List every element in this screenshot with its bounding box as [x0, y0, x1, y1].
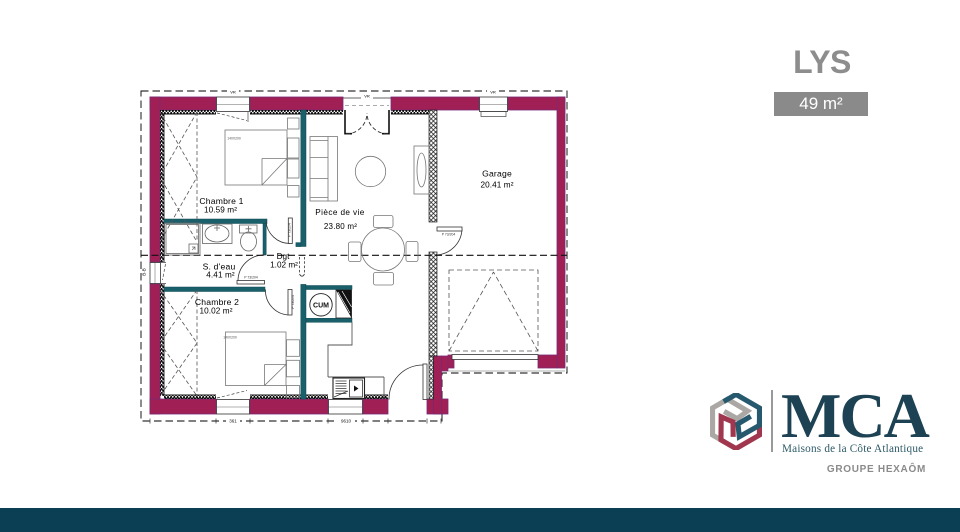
svg-text:Chambre 2: Chambre 2 — [195, 297, 239, 307]
svg-text:9610: 9610 — [341, 419, 352, 424]
svg-text:VR: VR — [230, 90, 236, 95]
svg-text:P 73/204: P 73/204 — [244, 276, 258, 280]
svg-text:140X200: 140X200 — [223, 336, 237, 340]
svg-text:20.41 m²: 20.41 m² — [480, 181, 513, 190]
svg-text:Pièce de vie: Pièce de vie — [315, 208, 364, 217]
svg-text:P 73/204: P 73/204 — [287, 223, 291, 237]
svg-text:CUM: CUM — [313, 303, 329, 310]
svg-text:VR: VR — [490, 90, 496, 95]
svg-text:10.02 m²: 10.02 m² — [199, 307, 232, 316]
svg-text:Garage: Garage — [482, 169, 512, 179]
svg-text:VR: VR — [364, 94, 370, 99]
svg-text:B-B: B-B — [142, 268, 147, 276]
svg-text:P 73/204: P 73/204 — [291, 295, 295, 309]
svg-text:361: 361 — [229, 419, 237, 424]
svg-text:Chambre 1: Chambre 1 — [199, 196, 243, 206]
svg-text:140X200: 140X200 — [227, 137, 241, 141]
svg-text:10.59 m²: 10.59 m² — [204, 206, 237, 215]
svg-text:1.02 m²: 1.02 m² — [270, 261, 298, 270]
svg-text:P 73/204: P 73/204 — [442, 233, 456, 237]
svg-text:23.80 m²: 23.80 m² — [324, 222, 357, 231]
svg-text:4.41 m²: 4.41 m² — [206, 271, 235, 280]
